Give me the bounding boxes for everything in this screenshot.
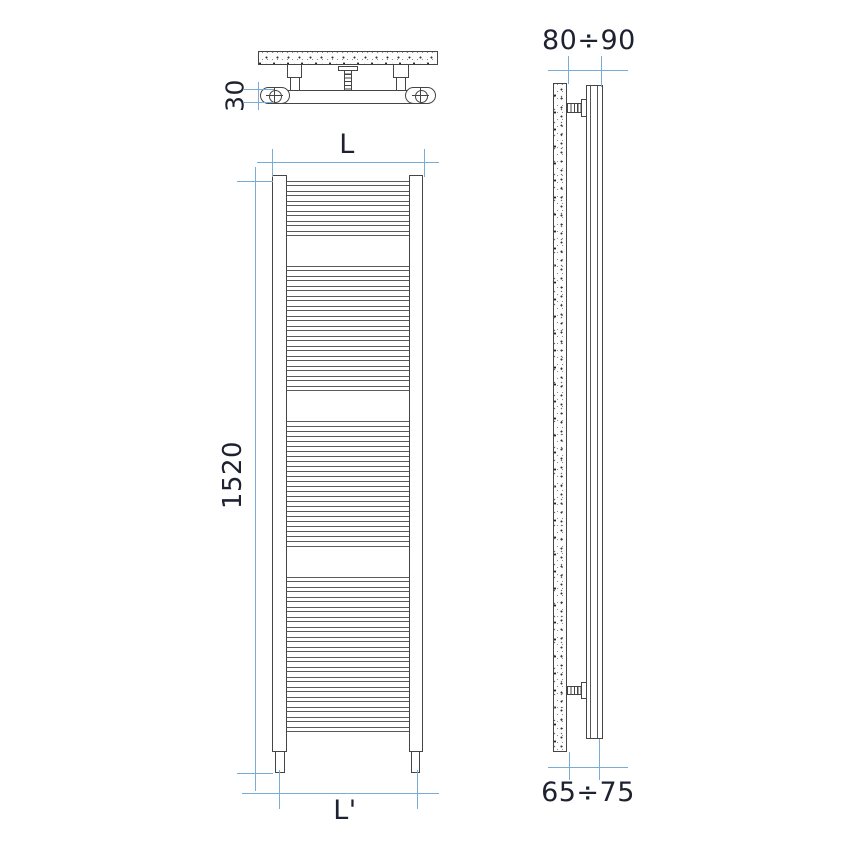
side-view: 80÷90 65÷75 — [0, 0, 850, 850]
dim-label-wall-offset-top: 80÷90 — [542, 27, 634, 54]
radiator-side-profile — [586, 85, 603, 739]
wall-section-side — [553, 83, 567, 752]
dimension-line — [548, 70, 628, 71]
extension-line — [599, 739, 600, 780]
extension-line — [601, 56, 602, 87]
collector-edge-line — [597, 86, 598, 738]
rung-edge-line — [590, 86, 591, 738]
wall-bracket-top-clamp — [581, 99, 587, 117]
drawing-canvas: 30 L 1520 L' — [0, 0, 850, 850]
dim-label-wall-offset-bottom: 65÷75 — [540, 779, 636, 806]
dimension-line — [548, 767, 628, 768]
wall-bracket-bottom-clamp — [581, 682, 587, 699]
